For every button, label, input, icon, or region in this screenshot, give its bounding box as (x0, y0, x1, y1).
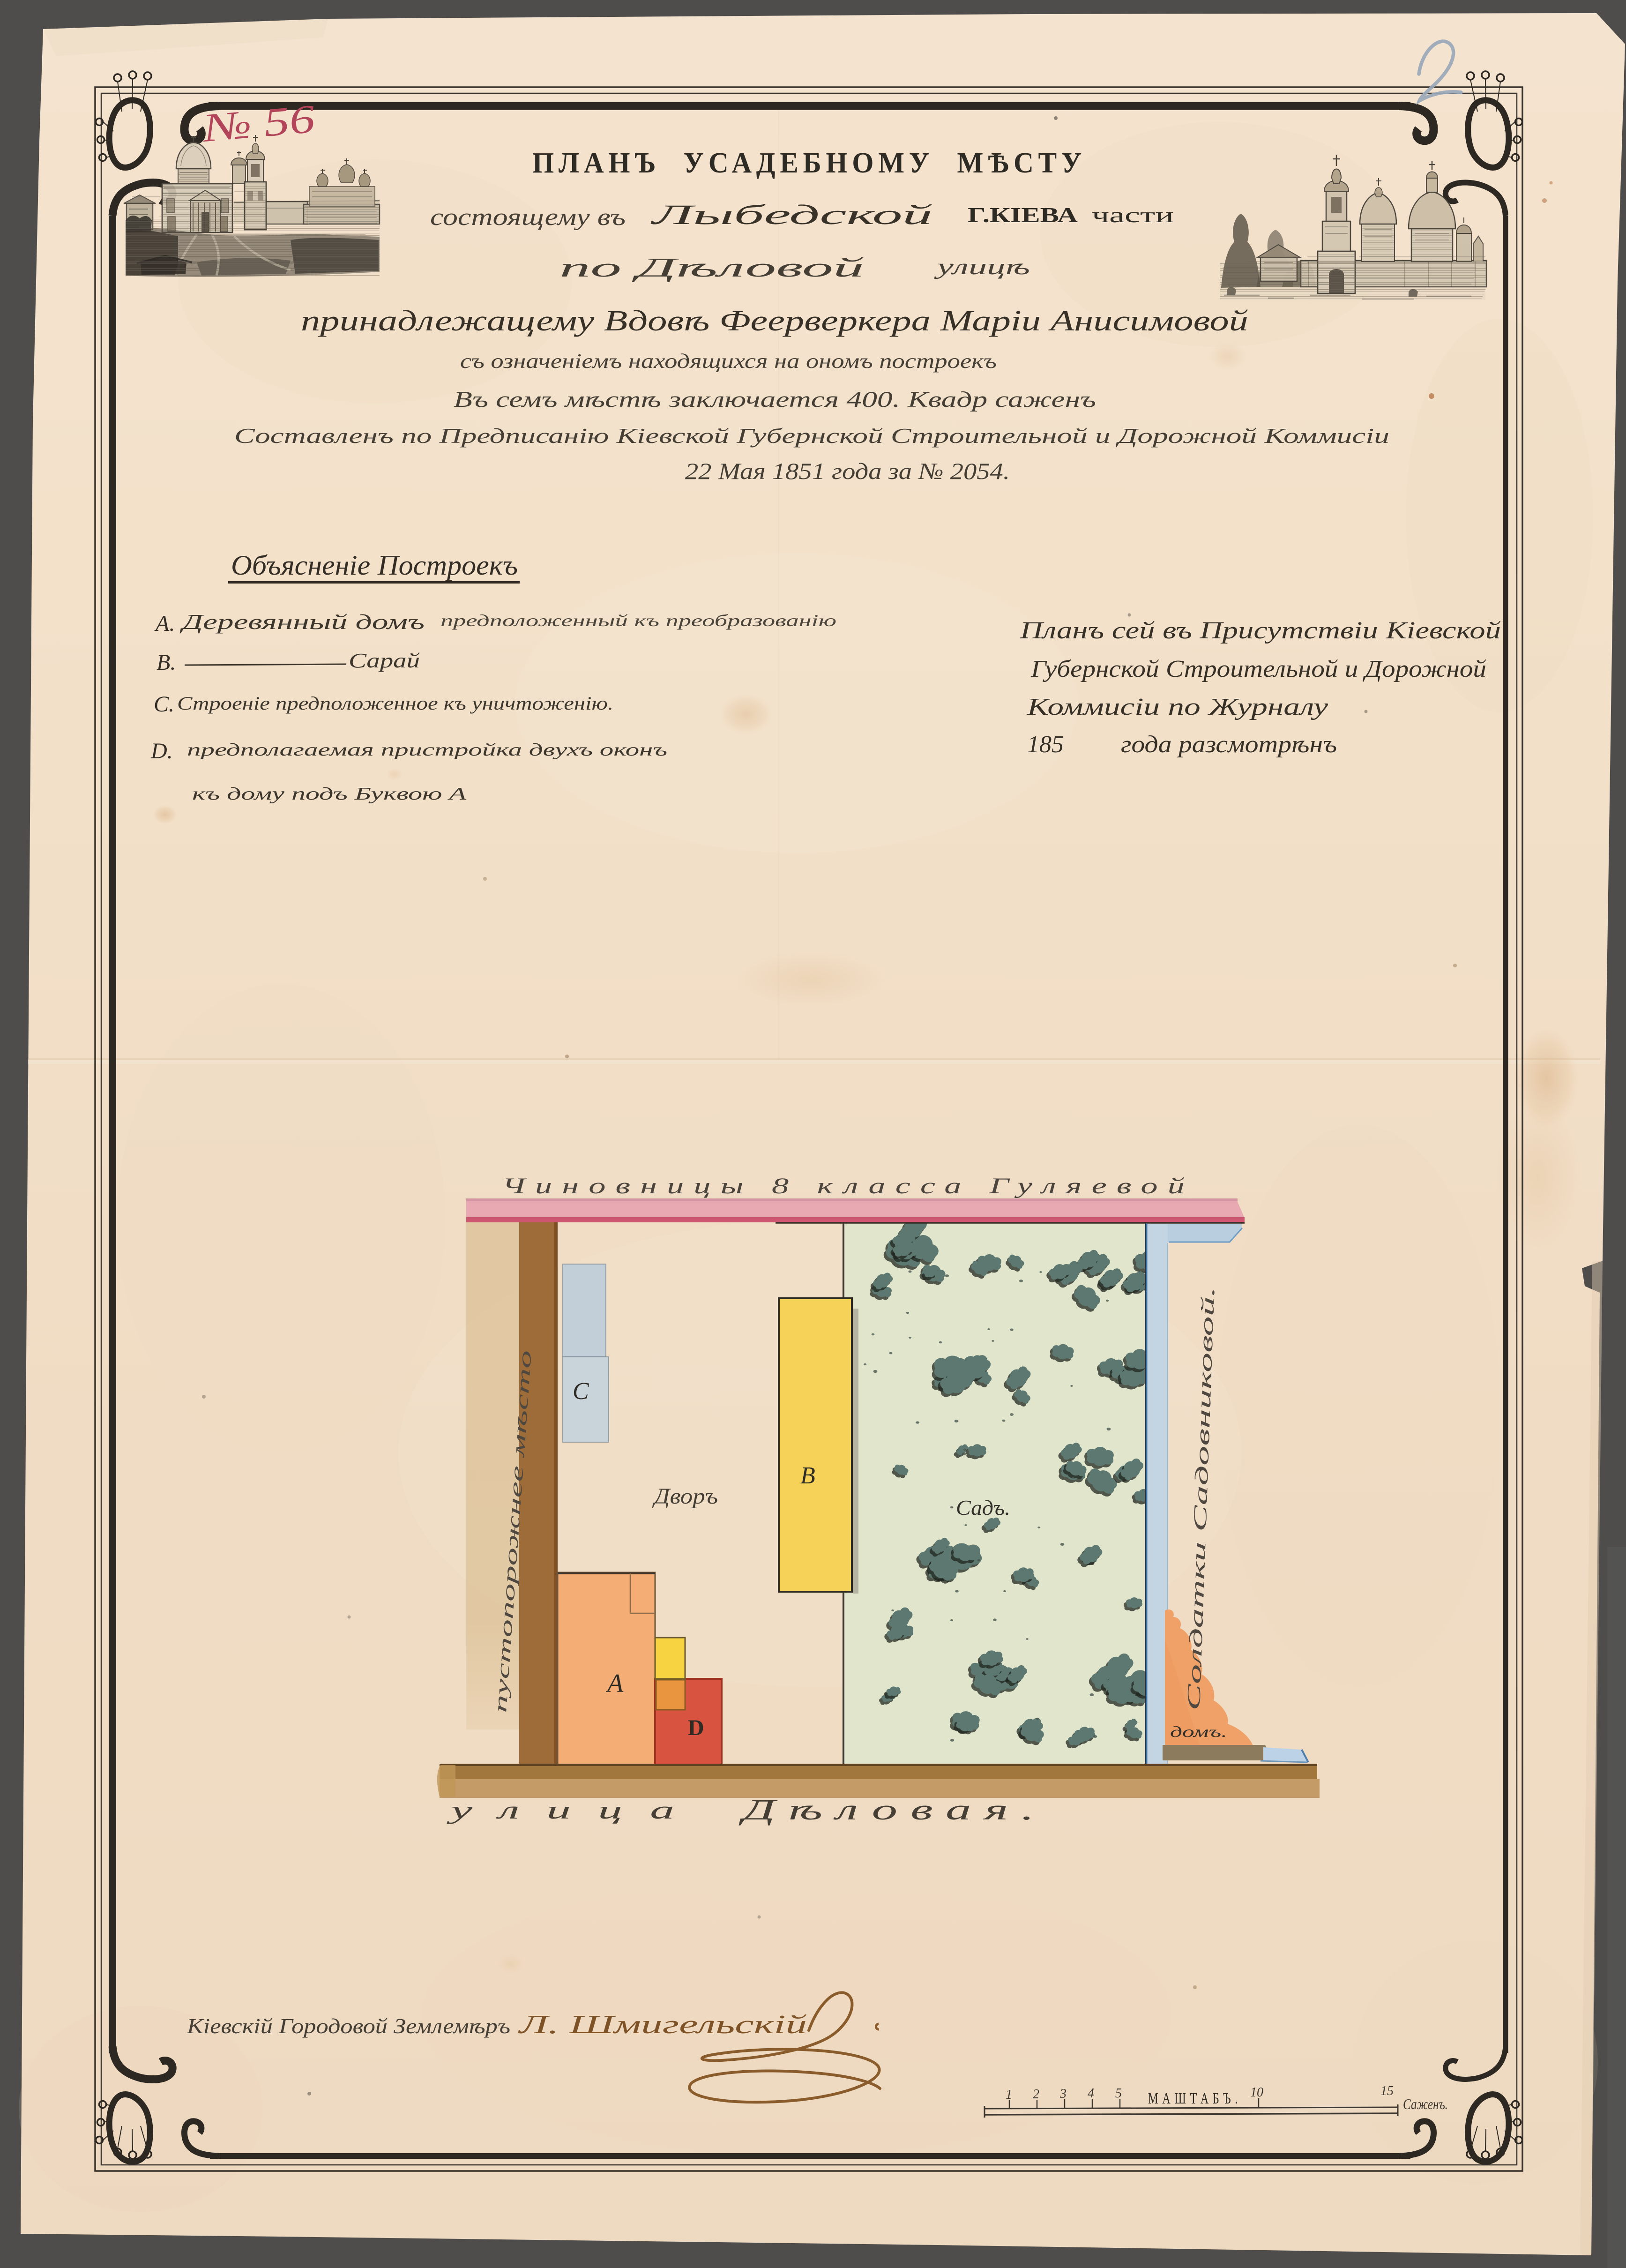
svg-text:B.: B. (157, 650, 176, 675)
svg-text:Лыбедской: Лыбедской (650, 199, 932, 230)
svg-text:Строеніе предположенное къ уни: Строеніе предположенное къ уничтоженію. (177, 693, 613, 714)
svg-text:B: B (800, 1462, 815, 1489)
svg-text:5: 5 (1115, 2086, 1122, 2101)
svg-text:1: 1 (1006, 2088, 1012, 2102)
svg-text:улицѣ: улицѣ (933, 254, 1030, 279)
svg-text:Дворъ: Дворъ (652, 1484, 718, 1509)
svg-text:22 Мая 1851 года за № 2054.: 22 Мая 1851 года за № 2054. (685, 458, 1010, 484)
svg-text:принадлежащему Вдовѣ Феерверке: принадлежащему Вдовѣ Феерверкера Маріи А… (301, 305, 1248, 337)
svg-text:Л. Шмигельскій: Л. Шмигельскій (518, 2010, 807, 2039)
svg-text:Объясненіе Построекъ: Объясненіе Построекъ (231, 550, 518, 581)
svg-text:съ означеніемъ находящихся на: съ означеніемъ находящихся на ономъ пост… (460, 350, 997, 373)
svg-text:года разсмотрѣнъ: года разсмотрѣнъ (1121, 731, 1337, 758)
svg-text:D: D (688, 1715, 704, 1740)
svg-text:Планъ сей въ Присутствіи Кіевс: Планъ сей въ Присутствіи Кіевской (1020, 617, 1501, 644)
svg-text:Въ семъ мѣстѣ заключается 400.: Въ семъ мѣстѣ заключается 400. Квадр саж… (454, 387, 1096, 412)
svg-text:улица: улица (446, 1796, 701, 1824)
svg-text:предположенный къ преобразован: предположенный къ преобразованію (440, 611, 836, 630)
svg-text:Коммисіи по Журналу: Коммисіи по Журналу (1027, 694, 1329, 720)
svg-text:A.: A. (154, 611, 175, 636)
svg-text:Дѣловая.: Дѣловая. (738, 1794, 1047, 1826)
svg-text:Садъ.: Садъ. (956, 1496, 1010, 1519)
svg-text:C.: C. (154, 692, 174, 717)
svg-text:части: части (1092, 203, 1174, 227)
svg-text:по Дѣловой: по Дѣловой (559, 252, 864, 283)
svg-text:4: 4 (1088, 2086, 1094, 2101)
svg-text:D.: D. (150, 739, 173, 763)
svg-text:къ дому подъ Буквою А: къ дому подъ Буквою А (192, 784, 467, 804)
svg-text:Деревянный домъ: Деревянный домъ (179, 610, 425, 634)
svg-text:МАШТАБЪ.: МАШТАБЪ. (1148, 2090, 1242, 2107)
svg-text:А: А (605, 1669, 624, 1698)
svg-text:Губернской Строительной и Доро: Губернской Строительной и Дорожной (1030, 656, 1486, 682)
svg-text:Кіевскій Городовой Землемѣръ: Кіевскій Городовой Землемѣръ (186, 2014, 510, 2038)
svg-text:3: 3 (1059, 2087, 1067, 2101)
svg-text:предполагаемая пристройка двух: предполагаемая пристройка двухъ оконъ (187, 740, 667, 760)
svg-text:2: 2 (1033, 2087, 1039, 2102)
svg-text:C: C (573, 1378, 589, 1405)
svg-text:Г.КІЕВА: Г.КІЕВА (968, 203, 1078, 227)
svg-text:15: 15 (1380, 2084, 1394, 2098)
svg-text:Составленъ по Предписанію Кіев: Составленъ по Предписанію Кіевской Губер… (234, 424, 1389, 448)
svg-text:Саженъ.: Саженъ. (1403, 2096, 1448, 2112)
svg-text:Сарай: Сарай (349, 649, 420, 672)
svg-text:Чиновницы 8 класса Гуляевой: Чиновницы 8 класса Гуляевой (502, 1174, 1194, 1198)
svg-text:ПЛАНЪ УСАДЕБНОМУ МѢСТУ: ПЛАНЪ УСАДЕБНОМУ МѢСТУ (532, 147, 1086, 179)
svg-text:185: 185 (1027, 731, 1064, 758)
svg-text:10: 10 (1250, 2085, 1263, 2100)
svg-text:состоящему въ: состоящему въ (430, 204, 626, 231)
svg-text:домъ.: домъ. (1170, 1723, 1227, 1741)
